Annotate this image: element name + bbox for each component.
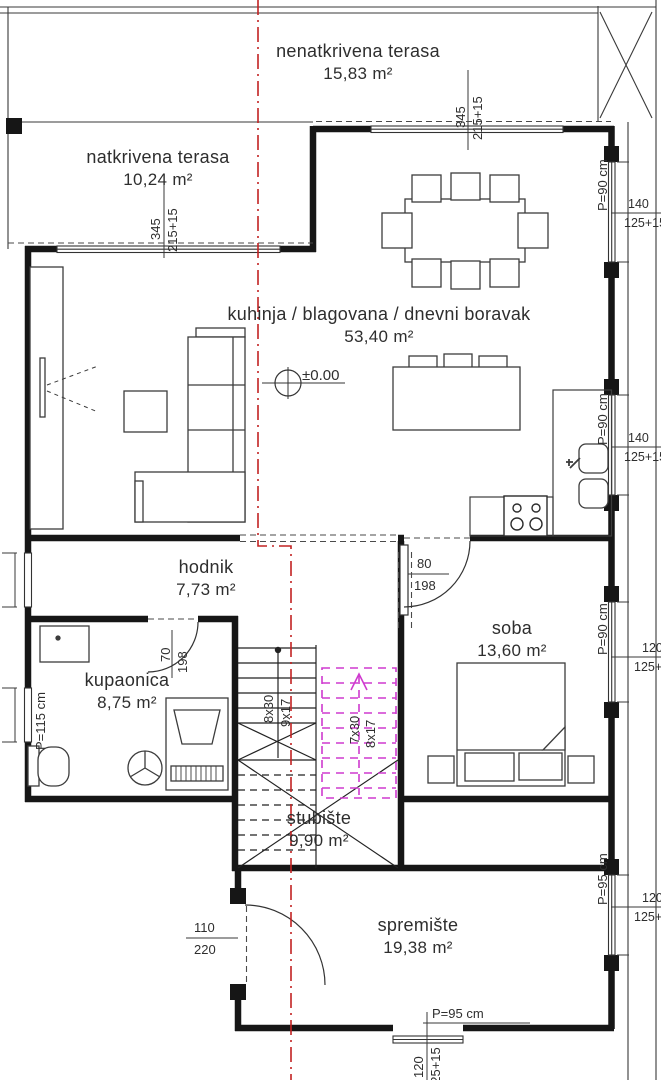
toilet-bowl bbox=[38, 747, 69, 786]
room-label-spremiste: spremište 19,38 m² bbox=[347, 914, 489, 958]
stove bbox=[504, 496, 547, 536]
windows-glazing bbox=[25, 126, 616, 1043]
tv-cabinet bbox=[30, 267, 98, 529]
coffee-table bbox=[124, 391, 167, 432]
stairs-landing-cross bbox=[238, 723, 316, 760]
pillow bbox=[465, 753, 514, 781]
dim-right4-height: 125+15 bbox=[634, 910, 661, 924]
room-label-kupaonica: kupaonica 8,75 m² bbox=[47, 669, 207, 713]
dim-bottom-width: 120 bbox=[411, 1056, 426, 1078]
room-area: 8,75 m² bbox=[47, 692, 207, 713]
dim-right1-width: 140 bbox=[628, 197, 649, 211]
level-marker-label: ±0.00 bbox=[302, 367, 339, 384]
door-spremiste-arc bbox=[245, 905, 325, 985]
dim-right2-height: 125+15 bbox=[624, 450, 661, 464]
dim-door-spremiste-height: 220 bbox=[194, 942, 216, 957]
dim-door-kupaonica-height: 198 bbox=[175, 651, 190, 673]
dimension-lines bbox=[2, 70, 661, 1080]
room-name: kuhinja / blagovana / dnevni boravak bbox=[223, 303, 535, 326]
dim-stairs-up-rise: 8x17 bbox=[363, 720, 378, 748]
room-name: stubište bbox=[255, 807, 383, 830]
parapet-bottom: P=95 cm bbox=[432, 1006, 484, 1021]
nightstand bbox=[568, 756, 594, 783]
floor-plan: nenatkrivena terasa 15,83 m² natkrivena … bbox=[0, 0, 661, 1080]
dim-right3-height: 125+15 bbox=[634, 660, 661, 674]
parapet-kitchen: P=90 cm bbox=[595, 393, 610, 445]
room-area: 19,38 m² bbox=[347, 937, 489, 958]
dim-door-soba-width: 80 bbox=[417, 556, 431, 571]
room-label-natkrivena-terasa: natkrivena terasa 10,24 m² bbox=[58, 146, 258, 190]
bed-group bbox=[428, 663, 594, 786]
section-line bbox=[258, 0, 291, 1080]
nightstand bbox=[428, 756, 454, 783]
dim-right1-height: 125+15 bbox=[624, 216, 661, 230]
dim-window-terrace-height: 215+15 bbox=[165, 208, 180, 252]
parapet-kupaonica: P=115 cm bbox=[33, 692, 48, 750]
parapet-living: P=90 cm bbox=[595, 159, 610, 211]
walls bbox=[25, 126, 614, 1031]
floor-drain bbox=[128, 751, 162, 785]
room-label-soba: soba 13,60 m² bbox=[442, 617, 582, 661]
room-name: hodnik bbox=[142, 556, 270, 579]
dim-door-kupaonica-width: 70 bbox=[158, 648, 173, 662]
dim-right2-width: 140 bbox=[628, 431, 649, 445]
room-area: 13,60 m² bbox=[442, 640, 582, 661]
room-name: spremište bbox=[347, 914, 489, 937]
dining-table-set bbox=[382, 173, 548, 289]
dim-right4-width: 120 bbox=[642, 891, 661, 905]
room-area: 9,90 m² bbox=[255, 830, 383, 851]
door-kupaonica-arc bbox=[148, 622, 198, 672]
room-area: 15,83 m² bbox=[258, 63, 458, 84]
room-name: soba bbox=[442, 617, 582, 640]
room-area: 53,40 m² bbox=[223, 326, 535, 347]
pillow bbox=[519, 753, 562, 780]
dim-door-spremiste-width: 110 bbox=[194, 920, 215, 935]
dim-window-top-height: 215+15 bbox=[470, 96, 485, 140]
washbasin bbox=[40, 626, 89, 662]
dim-door-soba-height: 198 bbox=[414, 578, 436, 593]
room-label-kuhinja: kuhinja / blagovana / dnevni boravak 53,… bbox=[223, 303, 535, 347]
dim-stairs-up-steps: 7x30 bbox=[347, 716, 362, 744]
room-area: 7,73 m² bbox=[142, 579, 270, 600]
tv-screen bbox=[40, 358, 45, 417]
kitchen-sink bbox=[566, 444, 608, 508]
terrace-pier bbox=[6, 118, 22, 134]
dim-right3-width: 120 bbox=[642, 641, 661, 655]
dim-window-terrace-width: 345 bbox=[148, 218, 163, 240]
exterior-stair-hatch bbox=[600, 12, 652, 118]
kitchen-island-set bbox=[393, 354, 520, 430]
faucet-icon bbox=[566, 458, 580, 468]
parapet-spremiste: P=95 cm bbox=[595, 853, 610, 905]
dim-window-top-width: 345 bbox=[453, 106, 468, 128]
dim-stairs-down-rise: 9x17 bbox=[278, 699, 293, 727]
room-label-nenatkrivena-terasa: nenatkrivena terasa 15,83 m² bbox=[258, 40, 458, 84]
room-label-hodnik: hodnik 7,73 m² bbox=[142, 556, 270, 600]
room-area: 10,24 m² bbox=[58, 169, 258, 190]
room-name: nenatkrivena terasa bbox=[258, 40, 458, 63]
room-name: natkrivena terasa bbox=[58, 146, 258, 169]
room-label-stubiste: stubište 9,90 m² bbox=[255, 807, 383, 851]
dim-stairs-down-steps: 8x30 bbox=[261, 695, 276, 723]
parapet-soba: P=90 cm bbox=[595, 603, 610, 655]
dim-bottom-height: 125+15 bbox=[428, 1047, 443, 1080]
